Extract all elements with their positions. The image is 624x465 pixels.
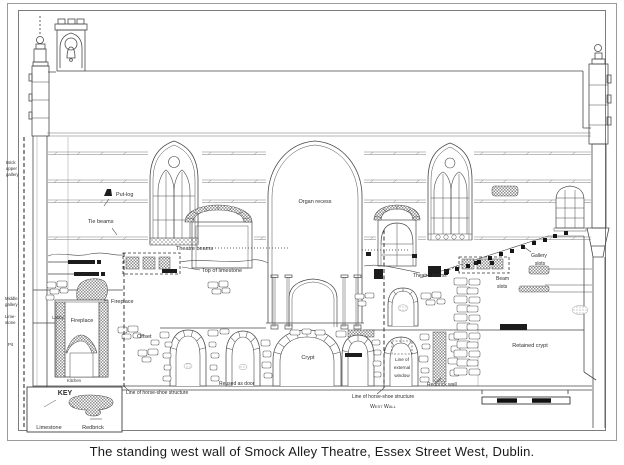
label-kitchen: Kitchen (67, 378, 82, 383)
label-theatre-beams-right: Theatre beams (413, 273, 447, 279)
margin-middle-gallery: gallery (5, 302, 19, 307)
label-fireplace-upper: Fireplace (111, 299, 134, 305)
key-redbrick-label: Redbrick (82, 425, 104, 431)
scale-bar (482, 390, 570, 404)
crypt-arches (170, 288, 418, 386)
margin-gallery: gallery (6, 172, 20, 177)
key-limestone-label: Limestone (36, 425, 61, 431)
label-gallery-slots-1: Gallery (531, 253, 547, 259)
label-line-external-3: window (394, 373, 410, 378)
scanned-figure-page: { "caption": "The standing west wall of … (0, 0, 624, 465)
stage-doorway (271, 275, 361, 329)
bellcote (55, 19, 87, 71)
label-gallery-slots-2: slots (535, 261, 546, 267)
margin-pit: Pit (8, 342, 14, 347)
margin-brick: Brick (6, 160, 16, 165)
label-redbrick-wall: Redbrick wall (427, 382, 457, 388)
label-line-external-2: external (394, 365, 410, 370)
gothic-window-right (428, 143, 472, 240)
label-horse-shoe-right: Line of horse-shoe structure (352, 394, 414, 400)
right-pier (587, 45, 611, 429)
figure-caption: The standing west wall of Smock Alley Th… (0, 444, 624, 459)
label-horse-shoe-left: Line of horse-shoe structure (126, 390, 188, 396)
label-retained-crypt: Retained crypt (512, 343, 548, 349)
label-tie-beams: Tie beams (88, 219, 114, 225)
margin-stone: stone (5, 320, 16, 325)
label-reused-as-door: Reused as door (219, 381, 255, 387)
label-organ-recess: Organ recess (298, 199, 331, 205)
label-west-wall: West Wall (370, 404, 396, 410)
label-lobby: Lobby (52, 315, 64, 320)
label-top-of-limestone: Top of limestone (202, 268, 242, 274)
label-offset: Offset (137, 334, 152, 340)
label-crypt: Crypt (301, 355, 315, 361)
key-title: KEY (58, 390, 73, 397)
margin-middle: Middle (5, 296, 18, 301)
organ-recess (268, 141, 362, 323)
gothic-window-left (150, 141, 198, 245)
label-theatre-beams-left: Theatre beams (176, 246, 213, 252)
label-put-log: Put-log (116, 192, 133, 198)
label-beam-slots-1: Beam (496, 276, 509, 282)
label-line-external-1: Line of (395, 357, 410, 362)
margin-upper: upper (6, 166, 18, 171)
redbrick-wall-pier (433, 332, 446, 382)
label-beam-slots-2: slots (497, 284, 508, 290)
margin-lime: Lime- (5, 314, 16, 319)
organ-posts (271, 275, 361, 329)
fireplace-lower-group (55, 300, 108, 377)
label-fireplace-lower: Fireplace (71, 318, 94, 324)
put-log-icon (104, 189, 112, 196)
small-window-right (554, 186, 586, 231)
elevation-drawing: Put-log Tie beams Organ recess Theatre b… (0, 0, 624, 465)
